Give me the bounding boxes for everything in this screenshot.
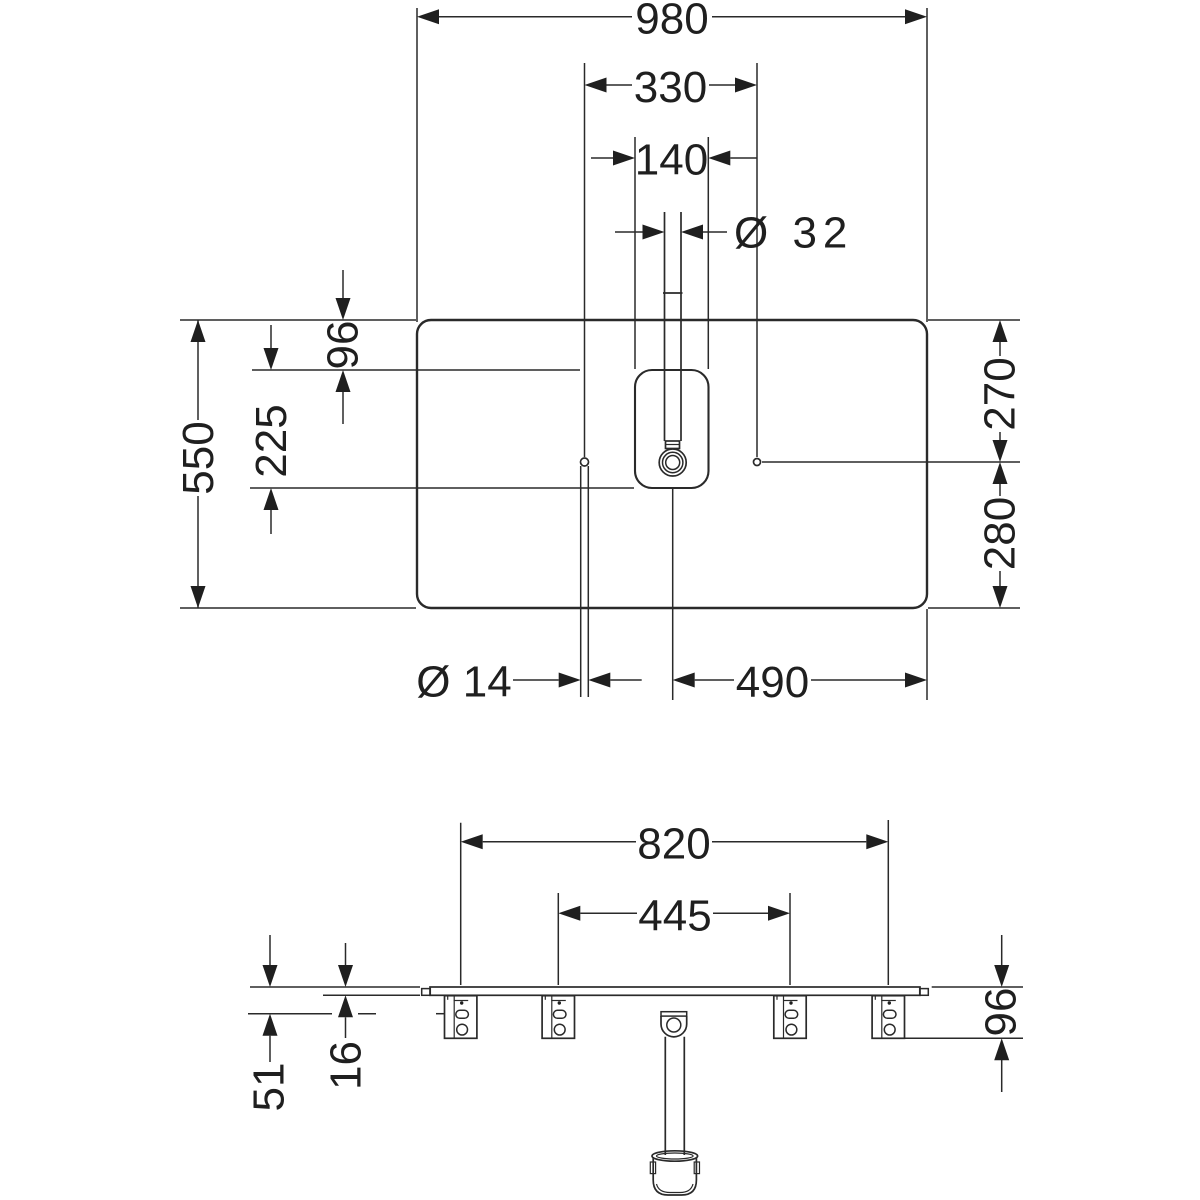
arrowhead xyxy=(613,151,635,166)
arrowhead xyxy=(461,834,483,849)
arrowhead xyxy=(336,298,351,320)
dim-label-51: 51 xyxy=(245,1063,294,1112)
arrowhead xyxy=(708,151,730,166)
console-panel xyxy=(430,987,920,995)
arrowhead xyxy=(263,965,278,987)
wall-bracket xyxy=(445,996,477,1039)
arrowhead xyxy=(338,995,353,1017)
dim-hole-spacing: 330 xyxy=(585,63,758,457)
wall-bracket xyxy=(774,996,806,1039)
dim-label-280: 280 xyxy=(976,497,1025,570)
bracket-screw-dot xyxy=(789,1001,792,1004)
trap-ring-inner xyxy=(667,1018,681,1032)
dim-label-225: 225 xyxy=(247,404,296,477)
wall-bracket xyxy=(872,996,904,1039)
bracket-slot-hole xyxy=(883,1010,896,1018)
dim-panel-thickness: 16 xyxy=(322,943,371,1090)
dim-holes-position: 270 280 xyxy=(762,320,1025,608)
arrowhead xyxy=(191,320,206,342)
drain-assembly xyxy=(659,212,686,700)
arrowhead xyxy=(417,9,439,24)
front-view: 820 445 51 xyxy=(245,820,1026,1196)
bracket-round-hole xyxy=(786,1024,797,1035)
dim-label-550: 550 xyxy=(174,421,223,494)
dim-label-330: 330 xyxy=(634,63,707,112)
arrowhead xyxy=(559,673,581,688)
dim-bracket-drop: 96 xyxy=(977,935,1026,1092)
dim-label-d14: Ø 14 xyxy=(416,658,511,707)
dim-cutout-depth: 225 xyxy=(247,325,634,534)
dim-label-16: 16 xyxy=(322,1041,371,1090)
arrowhead xyxy=(866,834,888,849)
trap-cup-rim xyxy=(652,1151,698,1161)
basin-cutout xyxy=(635,370,709,488)
arrowhead xyxy=(585,78,607,93)
dim-label-820: 820 xyxy=(637,820,710,869)
trap-ring-outer xyxy=(661,1016,687,1037)
dim-bracket-hole-offset: 51 xyxy=(245,935,294,1111)
dim-label-140: 140 xyxy=(635,136,708,185)
bracket-slot-hole xyxy=(456,1010,469,1018)
arrowhead xyxy=(768,906,790,921)
drawing-canvas: 980 330 140 Ø 32 xyxy=(0,0,1200,1200)
arrowhead xyxy=(263,1014,278,1036)
arrowhead xyxy=(643,225,665,240)
dim-cutout-width: 140 xyxy=(591,136,757,370)
arrowhead xyxy=(993,462,1008,484)
arrowhead xyxy=(264,348,279,370)
wall-bracket xyxy=(542,996,574,1039)
arrowhead xyxy=(993,320,1008,342)
bracket-screw-dot xyxy=(888,1001,891,1004)
dim-label-445: 445 xyxy=(638,892,711,941)
trap-flange xyxy=(661,1012,687,1016)
bracket-round-hole xyxy=(554,1024,565,1035)
faucet-hole xyxy=(581,458,589,697)
dim-label-d32: Ø 32 xyxy=(734,209,853,258)
bracket-screw-dot xyxy=(460,1001,463,1004)
bottle-trap xyxy=(650,1012,699,1195)
arrowhead xyxy=(558,906,580,921)
arrowhead xyxy=(994,1038,1009,1060)
arrowhead xyxy=(993,440,1008,462)
arrowhead xyxy=(673,673,695,688)
dim-inner-bracket-spacing: 445 xyxy=(558,892,790,986)
arrowhead xyxy=(191,586,206,608)
bracket-slot-hole xyxy=(785,1010,798,1018)
dim-label-490: 490 xyxy=(736,658,809,707)
arrowhead xyxy=(905,9,927,24)
arrowhead xyxy=(735,78,757,93)
panel-end-cap-left xyxy=(422,989,431,996)
panel-end-cap-right xyxy=(920,989,929,996)
top-view: 980 330 140 Ø 32 xyxy=(174,0,1025,707)
drain-inner-ring xyxy=(666,456,680,470)
arrowhead xyxy=(336,370,351,392)
arrowhead xyxy=(588,673,610,688)
dim-drain-diameter: Ø 32 xyxy=(615,209,853,258)
bracket-slot-hole xyxy=(553,1010,566,1018)
arrowhead xyxy=(681,225,703,240)
dim-label-270: 270 xyxy=(976,357,1025,430)
dim-hole-diameter: Ø 14 xyxy=(416,658,641,707)
trap-cup-inner-line xyxy=(657,1184,694,1193)
dim-label-980: 980 xyxy=(635,0,708,44)
dim-label-96-top: 96 xyxy=(319,321,368,370)
bracket-screw-dot xyxy=(558,1001,561,1004)
technical-drawing: 980 330 140 Ø 32 xyxy=(0,0,1200,1200)
trap-cup-rim-inner xyxy=(657,1153,694,1159)
arrowhead xyxy=(905,673,927,688)
right-fixing-hole xyxy=(754,459,761,466)
dim-drain-to-edge: 490 xyxy=(673,609,927,707)
faucet-hole-circle xyxy=(581,458,589,466)
bracket-round-hole xyxy=(884,1024,895,1035)
arrowhead xyxy=(264,488,279,510)
bracket-round-hole xyxy=(457,1024,468,1035)
arrowhead xyxy=(993,586,1008,608)
arrowhead xyxy=(994,965,1009,987)
arrowhead xyxy=(338,965,353,987)
dim-label-96-front: 96 xyxy=(977,988,1026,1037)
